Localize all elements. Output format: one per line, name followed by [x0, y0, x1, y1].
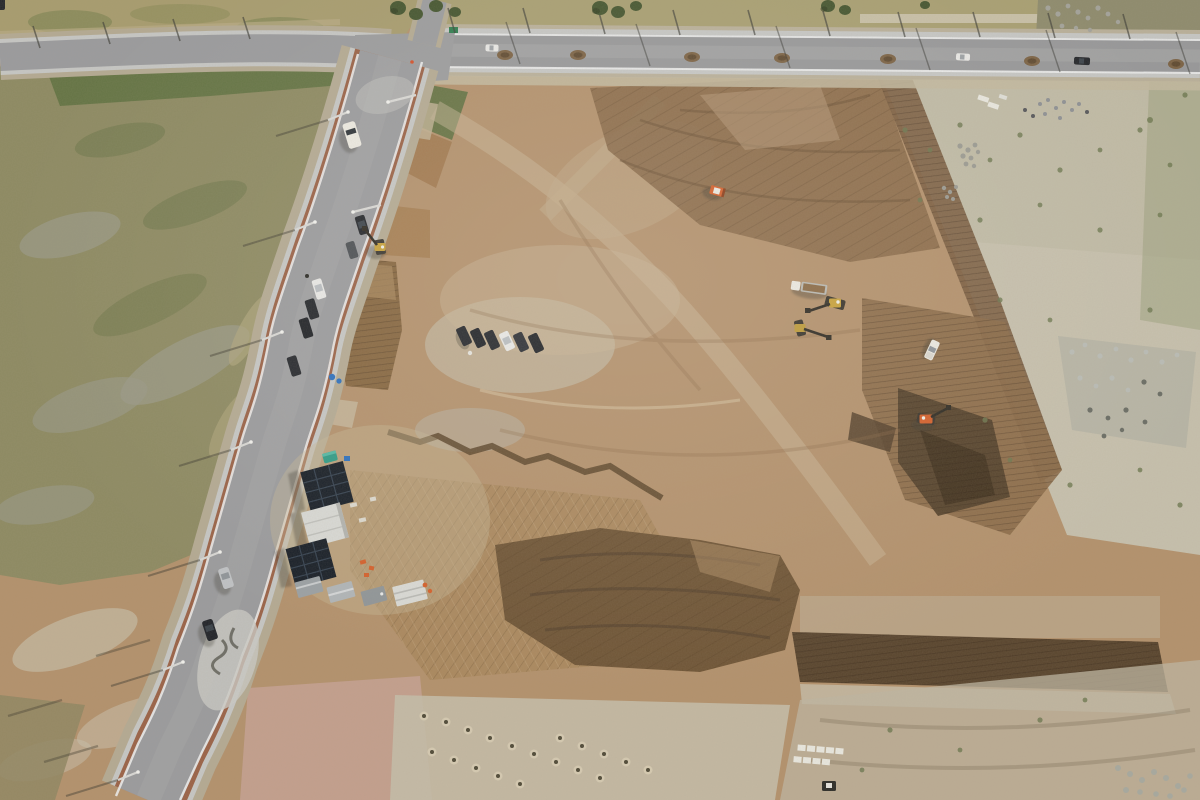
aerial-photo-stage — [0, 0, 1200, 800]
photo-grain — [0, 0, 1200, 800]
aerial-construction-photo — [0, 0, 1200, 800]
